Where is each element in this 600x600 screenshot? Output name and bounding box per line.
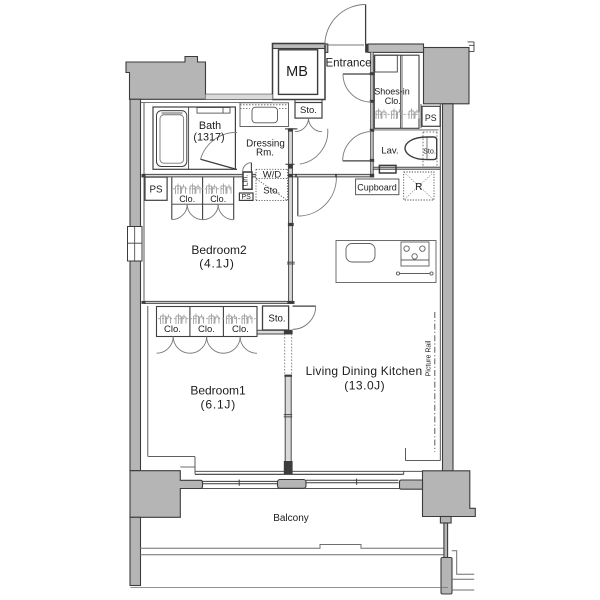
svg-text:Sto.: Sto.	[423, 147, 436, 156]
svg-text:Bath: Bath	[199, 120, 221, 132]
svg-text:PS: PS	[425, 113, 437, 123]
svg-text:Shoes-in: Shoes-in	[374, 86, 410, 96]
svg-text:Bedroom2: Bedroom2	[191, 243, 247, 257]
svg-text:Clo.: Clo.	[210, 194, 226, 204]
svg-text:W/D: W/D	[263, 170, 282, 181]
svg-text:PS: PS	[242, 194, 252, 201]
svg-text:Sto.: Sto.	[300, 105, 317, 116]
svg-text:Sto.: Sto.	[268, 314, 285, 325]
svg-text:Clo.: Clo.	[385, 96, 401, 106]
svg-text:Clo.: Clo.	[198, 324, 215, 335]
svg-text:Entrance: Entrance	[325, 57, 371, 69]
svg-text:Clo.: Clo.	[164, 324, 181, 335]
svg-text:Balcony: Balcony	[273, 513, 309, 524]
svg-text:Living Dining Kitchen: Living Dining Kitchen	[306, 364, 423, 378]
svg-text:Lin.: Lin.	[240, 175, 249, 187]
svg-text:Lav.: Lav.	[381, 145, 398, 156]
svg-text:Picture Rail: Picture Rail	[426, 340, 433, 376]
svg-text:R: R	[415, 182, 422, 193]
svg-text:Clo.: Clo.	[179, 194, 195, 204]
svg-text:MB: MB	[286, 64, 308, 80]
svg-text:Clo.: Clo.	[232, 324, 249, 335]
svg-text:Cupboard: Cupboard	[357, 183, 397, 193]
svg-text:(1317): (1317)	[193, 131, 224, 143]
svg-text:Sto.: Sto.	[263, 185, 280, 196]
svg-text:PS: PS	[149, 185, 163, 196]
svg-text:Rm.: Rm.	[256, 147, 274, 158]
svg-text:(4.1J): (4.1J)	[199, 257, 234, 271]
svg-text:(6.1J): (6.1J)	[201, 398, 236, 412]
svg-text:Bedroom1: Bedroom1	[190, 384, 246, 398]
svg-text:(13.0J): (13.0J)	[344, 379, 385, 393]
